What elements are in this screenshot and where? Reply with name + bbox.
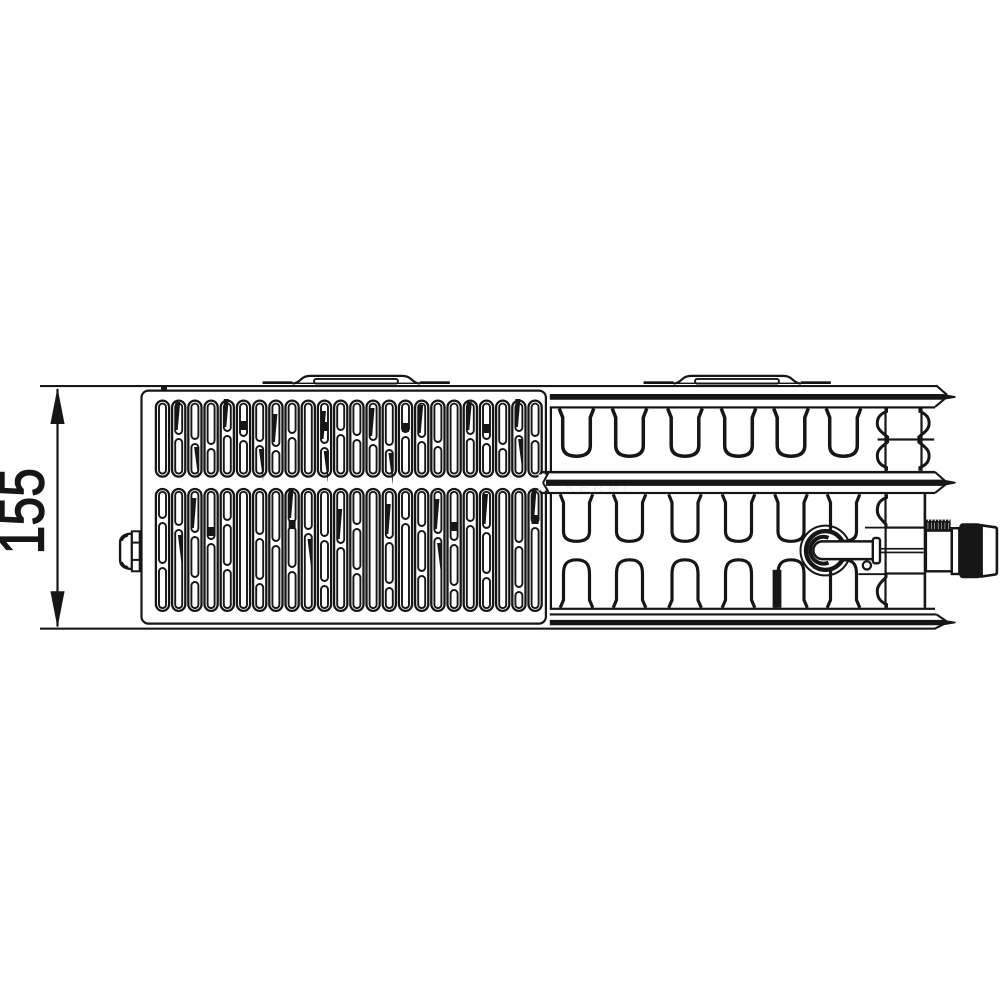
svg-text:155: 155 — [0, 468, 58, 554]
